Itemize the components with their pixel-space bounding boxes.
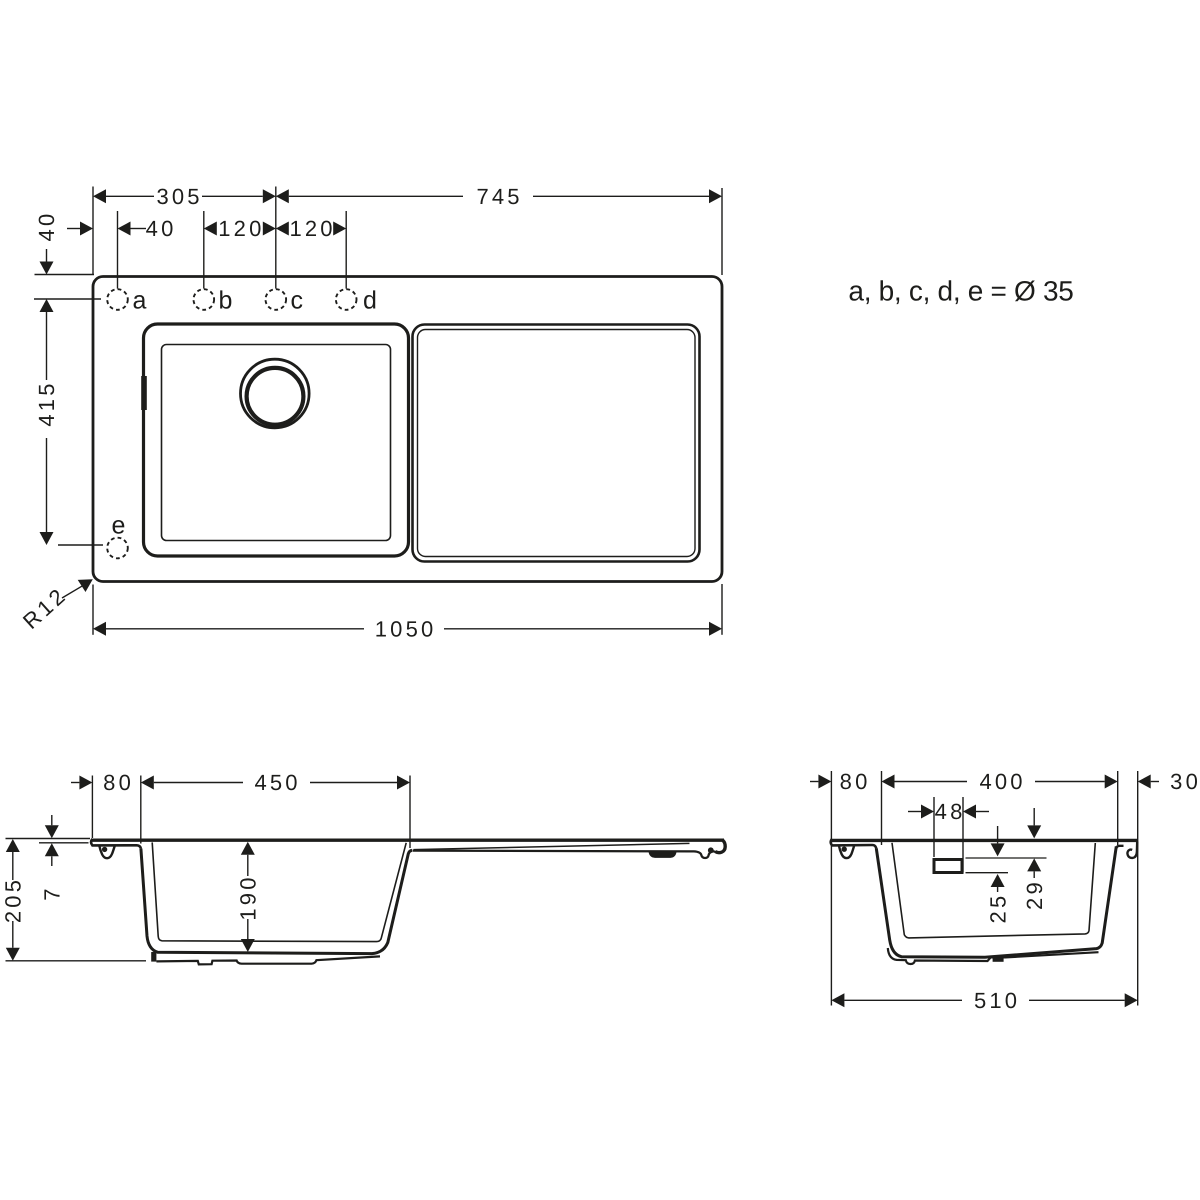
svg-text:400: 400 [979, 769, 1025, 794]
svg-text:415: 415 [34, 380, 59, 426]
svg-text:510: 510 [974, 988, 1020, 1013]
svg-text:745: 745 [476, 184, 522, 209]
svg-text:1050: 1050 [375, 617, 437, 642]
svg-text:190: 190 [236, 874, 261, 920]
svg-text:30: 30 [1170, 769, 1200, 794]
svg-text:a: a [133, 287, 147, 315]
svg-text:7: 7 [40, 885, 65, 900]
svg-text:40: 40 [146, 216, 177, 241]
svg-text:c: c [291, 287, 304, 315]
svg-text:120: 120 [289, 216, 335, 241]
svg-text:450: 450 [254, 770, 300, 795]
svg-text:29: 29 [1022, 879, 1047, 910]
svg-text:40: 40 [34, 211, 59, 242]
svg-text:80: 80 [840, 769, 871, 794]
svg-text:48: 48 [935, 799, 966, 824]
svg-text:205: 205 [1, 877, 26, 923]
svg-text:b: b [219, 287, 233, 315]
svg-text:305: 305 [156, 184, 202, 209]
svg-text:80: 80 [103, 770, 134, 795]
svg-text:a, b, c, d, e = Ø 35: a, b, c, d, e = Ø 35 [848, 276, 1073, 307]
svg-text:e: e [112, 512, 126, 540]
svg-text:25: 25 [985, 893, 1010, 924]
svg-text:120: 120 [218, 216, 264, 241]
svg-text:d: d [363, 287, 377, 315]
